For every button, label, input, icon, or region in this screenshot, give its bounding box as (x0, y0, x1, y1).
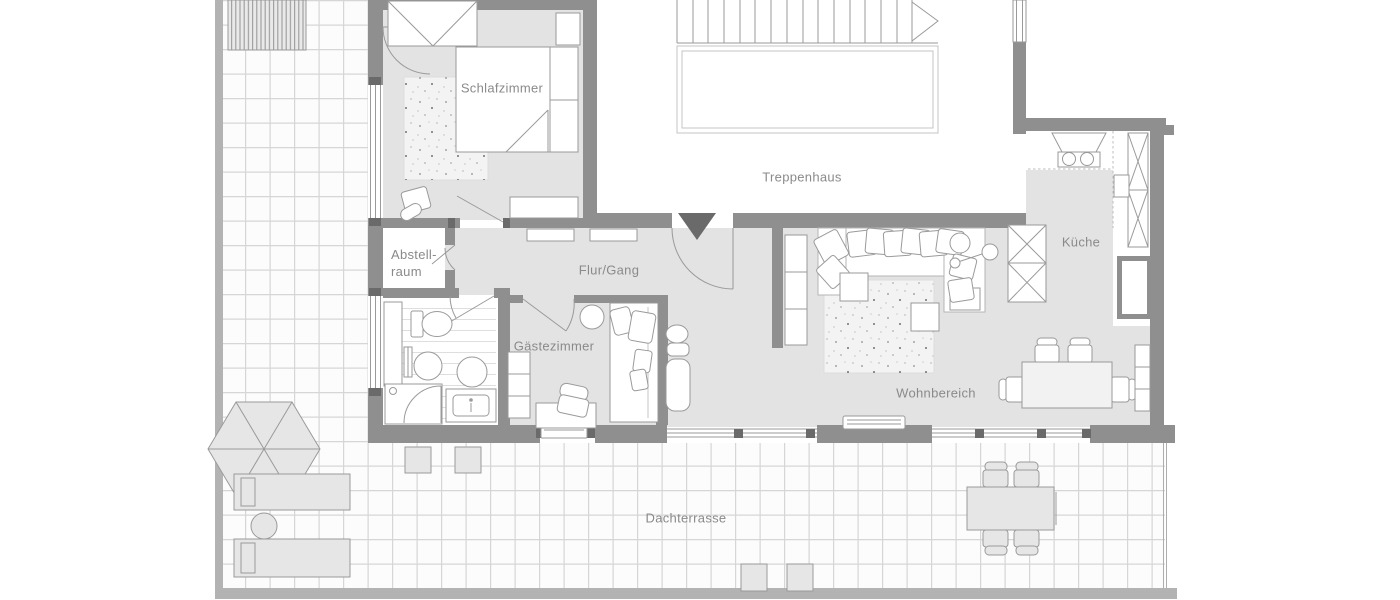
hall-sideboard (527, 229, 574, 241)
dryer (457, 357, 487, 387)
terrace-door-living (843, 416, 905, 429)
terrace-south-parapet (215, 588, 1177, 599)
planter (455, 447, 481, 473)
stairwell-floor (583, 0, 1026, 228)
desk-chair (556, 382, 589, 418)
planter (787, 564, 813, 591)
room-label-abstellraum-line2: raum (391, 263, 437, 280)
toilet (411, 311, 452, 337)
fridge (1117, 256, 1152, 319)
room-label-flur: Flur/Gang (579, 263, 640, 278)
sun-lounger (234, 539, 350, 577)
bathroom-window (368, 288, 383, 396)
washer (414, 352, 442, 380)
tall-sideboard (785, 235, 807, 345)
room-label-schlafzimmer: Schlafzimmer (461, 81, 543, 96)
radiator (404, 347, 412, 377)
guestroom-shelf (508, 352, 530, 418)
laundry-basket (580, 305, 604, 329)
shower (385, 384, 442, 424)
room-label-abstellraum: Abstell- raum (391, 246, 437, 280)
sideboard (510, 197, 578, 218)
kitchen-column-cabinet (1008, 225, 1046, 302)
terrace-side-table (251, 513, 277, 539)
room-label-wohnbereich: Wohnbereich (896, 386, 976, 401)
bath-shelf (384, 302, 402, 386)
room-label-treppenhaus: Treppenhaus (762, 170, 841, 185)
washbasin (446, 389, 496, 422)
room-label-kueche: Küche (1062, 235, 1100, 250)
coffee-table (911, 303, 939, 331)
wardrobe (388, 1, 477, 46)
floor-plan: Schlafzimmer Treppenhaus Abstell- raum F… (0, 0, 1400, 600)
stairwell-window (1013, 0, 1026, 42)
room-label-abstellraum-line1: Abstell- (391, 246, 437, 263)
sun-lounger (234, 474, 350, 510)
dresser (556, 13, 580, 45)
hall-sideboard (590, 229, 637, 241)
planter (405, 447, 431, 473)
ventilation-grate (228, 0, 306, 50)
bed-double (456, 47, 578, 152)
room-label-dachterrasse: Dachterrasse (646, 511, 727, 526)
bedroom-window (368, 77, 383, 226)
planter (741, 564, 767, 591)
terrace-west-parapet (215, 0, 223, 588)
kitchen-appliance (1114, 175, 1129, 197)
armchair-cushion (666, 359, 690, 411)
tall-cabinet (1128, 133, 1148, 247)
living-shelf (1135, 345, 1150, 411)
coffee-table (840, 273, 868, 301)
room-label-gaestezimmer: Gästezimmer (514, 339, 595, 354)
bed-single (609, 303, 658, 422)
